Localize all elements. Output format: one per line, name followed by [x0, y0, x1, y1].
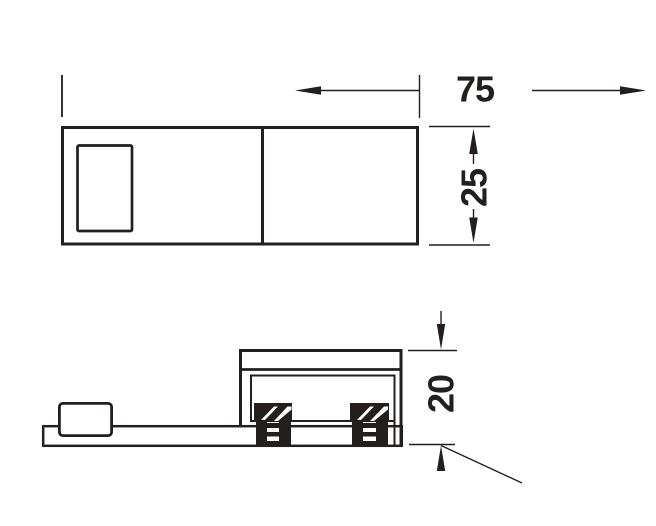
dimension-width-label: 75 — [456, 69, 495, 110]
leader-diagonal-line — [441, 446, 522, 484]
arrowhead-up-icon — [469, 129, 478, 155]
clip-rung — [256, 432, 291, 437]
dimension-height-label: 20 — [421, 375, 462, 413]
clip-rung — [352, 423, 388, 428]
arrowhead-down-icon — [469, 218, 478, 244]
side-view-block — [59, 403, 111, 435]
clip-rung — [352, 441, 388, 447]
arrowhead-up-icon — [437, 446, 445, 472]
dimension-height-20: 20 — [408, 311, 522, 483]
arrowhead-left-icon — [295, 86, 321, 95]
dimension-width-75: 75 — [62, 69, 646, 119]
arrowhead-down-icon — [437, 324, 445, 350]
top-view — [63, 127, 418, 244]
clip-rung — [352, 432, 388, 437]
dimension-depth-25: 25 — [429, 127, 495, 246]
side-view — [43, 349, 402, 447]
arrowhead-right-icon — [620, 86, 646, 95]
drawing-canvas: 75 25 20 — [0, 0, 656, 526]
clip-rung — [256, 423, 291, 428]
clip-rung — [256, 441, 291, 447]
top-view-inner-cutout — [78, 146, 133, 232]
dimension-depth-label: 25 — [454, 168, 495, 207]
